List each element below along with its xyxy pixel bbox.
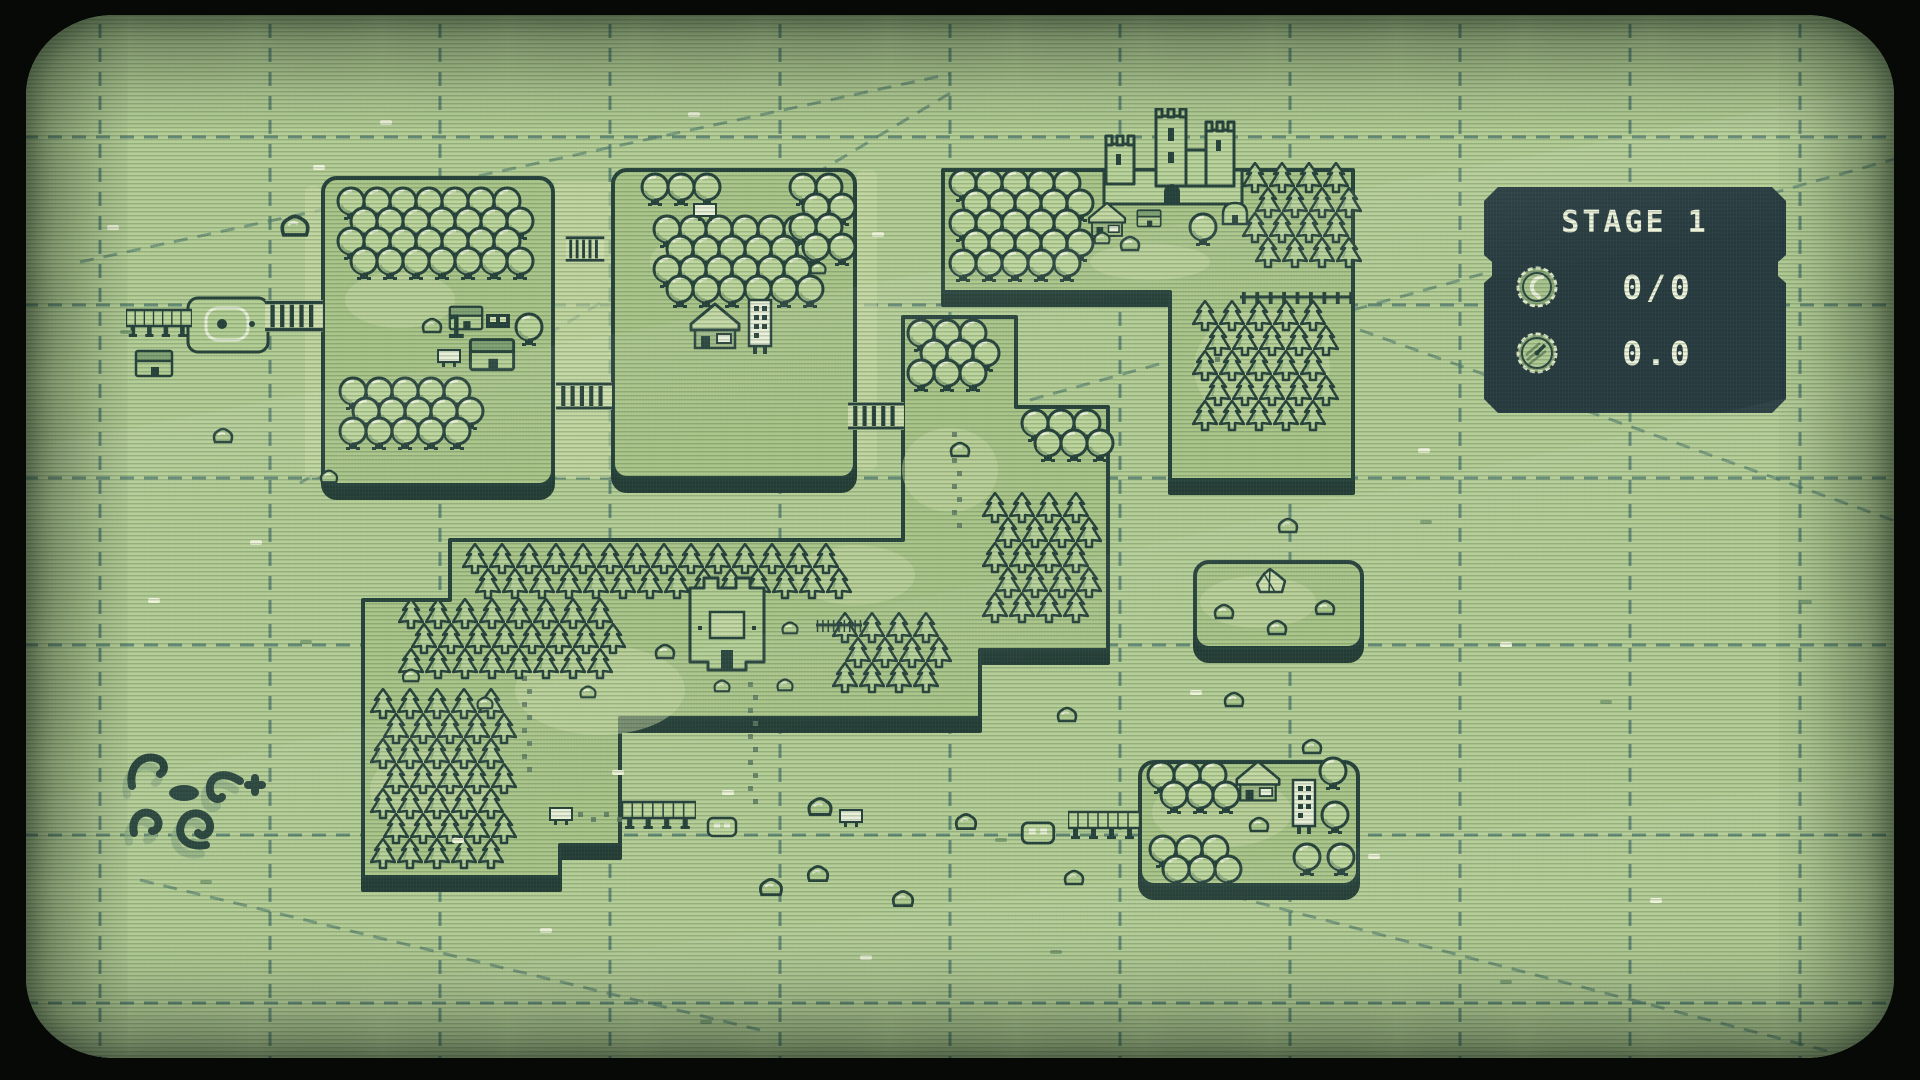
rock-sprite xyxy=(956,815,976,829)
path-dot xyxy=(748,682,753,687)
sparkle-sprite xyxy=(860,955,872,960)
wave-sprite xyxy=(120,330,132,334)
path-dot xyxy=(952,458,957,463)
rock-sprite xyxy=(1268,621,1286,634)
sign-v-sprite xyxy=(1293,780,1315,834)
sign-s-sprite xyxy=(840,810,862,827)
pier-sprite xyxy=(126,310,192,337)
wave-sprite xyxy=(700,1020,712,1024)
path-dot xyxy=(522,728,527,733)
sparkle-sprite xyxy=(540,928,552,933)
ground-patch xyxy=(345,272,455,328)
rock-sprite xyxy=(1065,871,1083,884)
path-dot xyxy=(527,689,532,694)
wave-sprite xyxy=(1600,700,1612,704)
sparkle-sprite xyxy=(107,225,119,230)
rock-sprite xyxy=(478,698,493,709)
rock-sprite xyxy=(656,645,674,658)
sparkle-sprite xyxy=(250,540,262,545)
sparkle-sprite xyxy=(1190,690,1202,695)
rock-sprite xyxy=(893,892,913,906)
rock-sprite xyxy=(809,799,831,815)
rock-sprite xyxy=(783,623,798,634)
collectible-medal-icon xyxy=(1514,264,1560,310)
raft-sprite xyxy=(1022,823,1054,843)
rock-sprite xyxy=(1316,601,1334,614)
path-dot xyxy=(957,497,962,502)
hut-sprite xyxy=(136,351,172,376)
rock-sprite xyxy=(1279,519,1297,532)
sparkle-sprite xyxy=(688,112,700,117)
timer-row: 0.0 xyxy=(1484,330,1786,376)
path-dot xyxy=(753,695,758,700)
path-dot xyxy=(753,773,758,778)
rock-sprite xyxy=(778,680,793,691)
rock-sprite xyxy=(581,687,596,698)
hud-panel: STAGE 1 0/0 0.0 xyxy=(1484,187,1786,413)
path-dot xyxy=(952,432,957,437)
collectibles-row: 0/0 xyxy=(1484,264,1786,310)
sign-v-sprite xyxy=(749,300,771,354)
rock-sprite xyxy=(214,429,232,442)
map-canvas: 1 xyxy=(26,15,1894,1058)
sparkle-sprite xyxy=(148,598,160,603)
path-dot xyxy=(527,715,532,720)
path-dot xyxy=(753,721,758,726)
dock-sprite xyxy=(188,298,268,352)
sparkle-sprite xyxy=(872,232,884,237)
fort-sprite xyxy=(690,578,764,670)
sparkle-sprite xyxy=(1418,448,1430,453)
ladder-sprite xyxy=(566,236,605,262)
ladder-sprite xyxy=(265,300,323,332)
dome-sprite xyxy=(1223,203,1247,224)
rock-sprite xyxy=(282,217,308,235)
rock-sprite xyxy=(761,880,782,895)
rock-sprite xyxy=(1058,708,1076,721)
rock-sprite xyxy=(1250,818,1268,831)
sparkle-sprite xyxy=(1368,854,1380,859)
sparkle-sprite xyxy=(1650,898,1662,903)
path-dot xyxy=(748,760,753,765)
path-dot xyxy=(1215,357,1220,362)
path-dot xyxy=(753,799,758,804)
rock-sprite xyxy=(811,263,826,274)
path-dot xyxy=(952,510,957,515)
shore-band xyxy=(553,182,613,478)
rock-sprite xyxy=(1303,740,1321,753)
path-dot xyxy=(604,812,609,817)
wave-sprite xyxy=(1800,600,1812,604)
ground-patch xyxy=(1090,244,1210,280)
map-label: 1 xyxy=(446,308,465,346)
ladder-sprite xyxy=(556,382,612,410)
rock-sprite xyxy=(1121,237,1139,250)
sparkle-sprite xyxy=(380,120,392,125)
stage-title: STAGE 1 xyxy=(1484,205,1786,240)
wave-sprite xyxy=(300,640,312,644)
fence-sprite xyxy=(816,620,862,632)
path-dot xyxy=(527,767,532,772)
path-dot xyxy=(748,708,753,713)
ground-patch xyxy=(902,428,998,512)
rock-sprite xyxy=(403,670,419,682)
path-dot xyxy=(753,747,758,752)
timer-value: 0.0 xyxy=(1560,334,1756,373)
sparkle-sprite xyxy=(313,165,325,170)
path-dot xyxy=(522,754,527,759)
sea-monster-signature xyxy=(122,741,292,871)
sparkle-sprite xyxy=(1500,642,1512,647)
sparkle-sprite xyxy=(612,770,624,775)
stopwatch-icon xyxy=(1514,330,1560,376)
castle-sprite xyxy=(1104,109,1242,204)
path-dot xyxy=(527,741,532,746)
rock-sprite xyxy=(321,471,337,483)
crt-bezel: 1 STAGE 1 xyxy=(0,0,1920,1080)
sign-rr-sprite xyxy=(486,314,510,328)
path-dot xyxy=(957,471,962,476)
path-dot xyxy=(748,786,753,791)
path-dot xyxy=(617,817,622,822)
raft-sprite xyxy=(708,818,736,836)
rock-sprite xyxy=(808,867,828,881)
sparkle-sprite xyxy=(722,790,734,795)
path-dot xyxy=(578,812,583,817)
path-dot xyxy=(957,523,962,528)
wave-sprite xyxy=(1500,980,1512,984)
wave-sprite xyxy=(200,880,212,884)
path-dot xyxy=(952,484,957,489)
path-dot xyxy=(748,734,753,739)
path-dot xyxy=(522,702,527,707)
rock-sprite xyxy=(423,319,441,332)
wave-sprite xyxy=(995,838,1007,842)
rock-sprite xyxy=(1095,233,1110,244)
hut-sprite xyxy=(470,340,513,370)
hut-sprite xyxy=(1137,210,1160,226)
collectibles-counter: 0/0 xyxy=(1560,268,1756,307)
fence-sprite xyxy=(1240,292,1355,304)
rock-sprite xyxy=(1225,693,1243,706)
wave-sprite xyxy=(1420,520,1432,524)
sparkle-sprite xyxy=(452,838,464,843)
rock-sprite xyxy=(715,681,730,692)
rock-sprite xyxy=(1215,605,1233,618)
game-screen[interactable]: 1 STAGE 1 xyxy=(26,15,1894,1058)
rock-sprite xyxy=(951,443,969,456)
path-dot xyxy=(591,817,596,822)
pier-sprite xyxy=(622,802,696,829)
ladder-sprite xyxy=(848,402,904,430)
wave-sprite xyxy=(1050,950,1062,954)
